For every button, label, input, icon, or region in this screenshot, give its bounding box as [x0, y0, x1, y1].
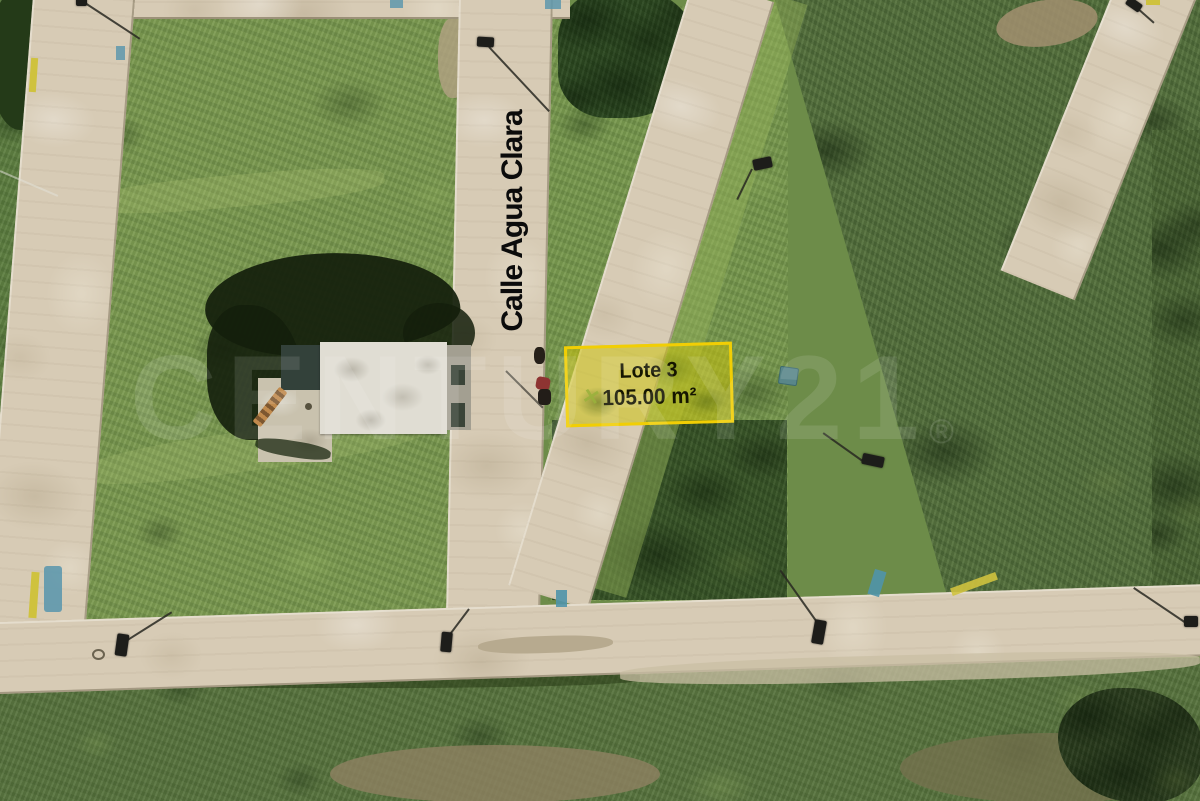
street-lamp [1184, 616, 1198, 627]
dirt-patch-bottom [330, 745, 660, 801]
curb-mark-blue [116, 46, 125, 60]
street-lamp [477, 37, 495, 48]
street-name-label: Calle Agua Clara [494, 91, 532, 351]
curb-mark-yellow [1146, 0, 1160, 5]
aerial-photo: Lote 3 105.00 m² ✕ CENTURY21® Calle Agua… [0, 0, 1200, 801]
manhole-cover [92, 649, 105, 660]
street-lamp [76, 0, 87, 6]
curb-mark-blue [390, 0, 403, 8]
street-lamp [440, 632, 453, 653]
watermark: CENTURY21® [130, 318, 1090, 478]
curb-mark-blue [44, 566, 62, 612]
curb-mark-blue [545, 0, 561, 9]
lot-block-far-right [1152, 130, 1200, 605]
curb-mark-blue [556, 590, 567, 607]
curb-mark-blue [867, 569, 886, 597]
registered-trademark-icon: ® [929, 413, 964, 452]
